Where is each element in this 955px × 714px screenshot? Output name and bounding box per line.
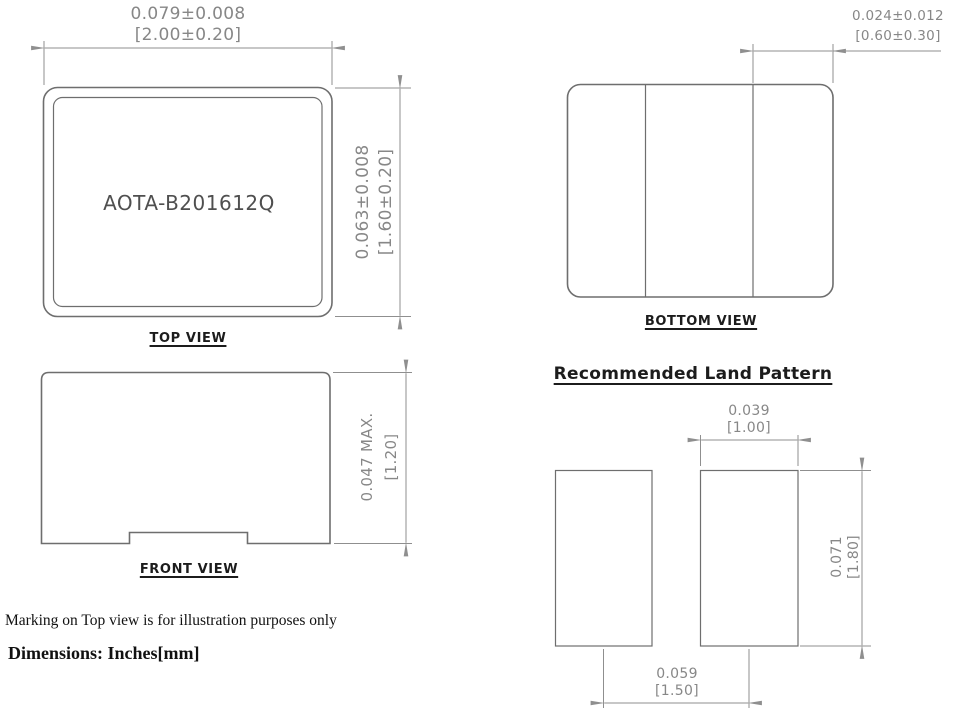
land-pattern-pad-pitch-inches: 0.059: [656, 666, 698, 682]
front-view-height-inches: 0.047 MAX.: [358, 413, 376, 502]
drawing-linework: [0, 0, 955, 714]
land-pattern-pad-height-inches: 0.071: [829, 536, 845, 578]
marking-note: Marking on Top view is for illustration …: [5, 612, 337, 630]
part-marking: AOTA-B201612Q: [103, 191, 275, 215]
land-pattern-pad-pitch-mm: [1.50]: [655, 683, 699, 699]
top-view-width-mm: [2.00±0.20]: [135, 25, 242, 45]
top-view-label: TOP VIEW: [150, 331, 227, 346]
bottom-view-terminal-mm: [0.60±0.30]: [855, 28, 940, 44]
bottom-view-body: [568, 85, 834, 298]
front-view-body: [42, 373, 331, 544]
bottom-view-dimension-lines: [753, 44, 941, 83]
top-view-width-inches: 0.079±0.008: [131, 4, 246, 24]
land-pattern-pads: [556, 471, 799, 647]
bottom-view-label: BOTTOM VIEW: [645, 314, 757, 329]
land-pattern-pad-height-mm: [1.80]: [846, 535, 862, 579]
land-pattern-pad-width-inches: 0.039: [728, 403, 770, 419]
land-pattern-pad-width-mm: [1.00]: [727, 420, 771, 436]
top-view-height-mm: [1.60±0.20]: [376, 149, 396, 256]
front-view-label: FRONT VIEW: [140, 562, 238, 577]
land-pattern-title: Recommended Land Pattern: [554, 364, 833, 384]
units-note: Dimensions: Inches[mm]: [8, 643, 200, 664]
drawing-sheet: 0.079±0.008 [2.00±0.20] 0.063±0.008 [1.6…: [0, 0, 955, 714]
bottom-view-terminal-inches: 0.024±0.012: [852, 8, 944, 24]
front-view-height-mm: [1.20]: [382, 434, 400, 481]
top-view-height-inches: 0.063±0.008: [353, 145, 373, 260]
